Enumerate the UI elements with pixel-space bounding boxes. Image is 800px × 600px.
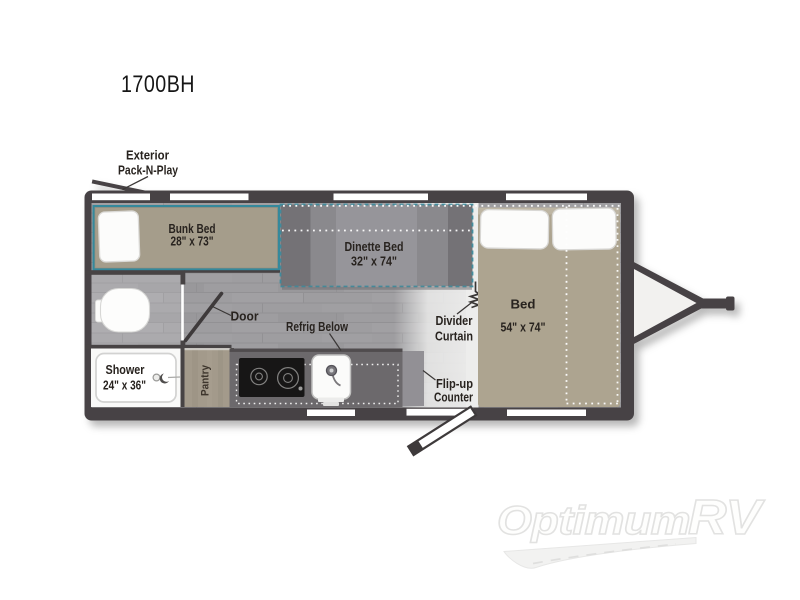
svg-text:RV: RV <box>688 491 766 545</box>
svg-text:Pantry: Pantry <box>200 364 212 396</box>
svg-text:Bed: Bed <box>511 297 536 312</box>
svg-text:Divider: Divider <box>436 313 473 328</box>
svg-text:Optimum: Optimum <box>497 499 690 543</box>
svg-text:1700BH: 1700BH <box>121 71 195 98</box>
svg-text:Dinette Bed: Dinette Bed <box>345 239 404 254</box>
svg-text:28" x 73": 28" x 73" <box>171 234 214 249</box>
svg-text:54" x 74": 54" x 74" <box>501 320 546 335</box>
svg-text:24" x 36": 24" x 36" <box>103 378 146 393</box>
svg-text:Shower: Shower <box>106 362 145 377</box>
svg-text:32" x 74": 32" x 74" <box>351 254 397 269</box>
svg-text:Pack-N-Play: Pack-N-Play <box>118 163 179 178</box>
svg-text:Refrig Below: Refrig Below <box>286 319 349 334</box>
svg-text:Counter: Counter <box>434 390 473 405</box>
svg-text:Door: Door <box>231 309 259 324</box>
svg-text:Exterior: Exterior <box>126 148 169 163</box>
svg-text:Curtain: Curtain <box>435 329 473 344</box>
